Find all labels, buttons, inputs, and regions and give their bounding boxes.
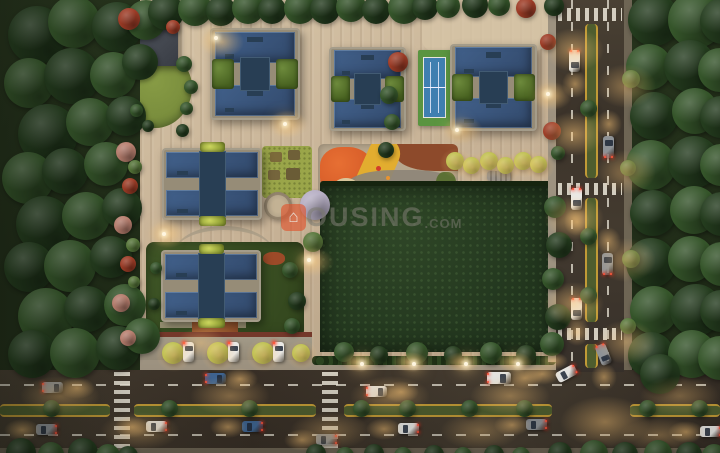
tree bbox=[241, 400, 258, 417]
tree bbox=[116, 142, 136, 162]
site-plan-rendering: ⌂ OUSING .COM bbox=[0, 0, 720, 453]
tree bbox=[480, 152, 498, 170]
tree bbox=[488, 0, 510, 16]
tree bbox=[644, 440, 672, 453]
tail-light bbox=[572, 298, 574, 300]
tail-light bbox=[570, 50, 572, 52]
tree bbox=[166, 20, 180, 34]
car bbox=[398, 423, 419, 434]
watermark: ⌂ OUSING .COM bbox=[281, 204, 462, 231]
tree bbox=[334, 342, 354, 362]
tree bbox=[142, 120, 154, 132]
tree bbox=[620, 318, 636, 334]
tail-light bbox=[205, 374, 207, 376]
car-windshield bbox=[600, 354, 609, 362]
tree bbox=[42, 148, 88, 194]
tail-light bbox=[579, 188, 581, 190]
car-windshield bbox=[604, 257, 612, 263]
tail-light bbox=[577, 50, 579, 52]
tree bbox=[306, 444, 326, 453]
tail-light bbox=[545, 427, 547, 429]
tree bbox=[620, 160, 636, 176]
car bbox=[205, 373, 226, 384]
tail-light bbox=[487, 373, 489, 375]
tree bbox=[542, 268, 564, 290]
tree bbox=[612, 442, 638, 453]
tail-light bbox=[42, 383, 44, 385]
tree bbox=[64, 286, 110, 332]
car-windshield bbox=[321, 436, 326, 444]
tree bbox=[122, 44, 158, 80]
tree bbox=[530, 156, 547, 173]
tree bbox=[484, 445, 504, 453]
street-light bbox=[283, 122, 287, 126]
tail-light bbox=[55, 432, 57, 434]
tree bbox=[38, 442, 64, 453]
tail-light bbox=[610, 273, 612, 275]
tree bbox=[497, 157, 514, 174]
tree bbox=[50, 328, 100, 378]
tree bbox=[130, 104, 143, 117]
tree bbox=[292, 344, 310, 362]
street-light bbox=[546, 92, 550, 96]
car-windshield bbox=[403, 425, 408, 433]
car-windshield bbox=[41, 426, 46, 434]
car-windshield bbox=[151, 423, 156, 431]
tree bbox=[446, 152, 464, 170]
tail-light bbox=[603, 273, 605, 275]
car bbox=[700, 426, 720, 437]
car-windshield bbox=[573, 200, 581, 206]
tree bbox=[370, 346, 388, 364]
car bbox=[228, 342, 239, 362]
tree bbox=[106, 96, 146, 136]
car-windshield bbox=[500, 374, 506, 383]
tree bbox=[128, 160, 142, 174]
car bbox=[36, 424, 57, 435]
tree bbox=[461, 400, 478, 417]
tree bbox=[336, 447, 354, 453]
tree bbox=[384, 114, 400, 130]
tail-light bbox=[545, 420, 547, 422]
tail-light bbox=[572, 365, 575, 368]
tree bbox=[288, 292, 306, 310]
tail-light bbox=[335, 442, 337, 444]
tree bbox=[424, 445, 444, 453]
tail-light bbox=[487, 381, 489, 383]
tail-light bbox=[611, 156, 613, 158]
tail-light bbox=[366, 394, 368, 396]
tail-light bbox=[366, 387, 368, 389]
tree bbox=[122, 178, 138, 194]
car-windshield bbox=[571, 62, 579, 68]
tree bbox=[516, 400, 533, 417]
tree bbox=[128, 276, 140, 288]
tail-light bbox=[417, 431, 419, 433]
tree bbox=[6, 438, 36, 453]
tree bbox=[44, 240, 96, 292]
tree bbox=[691, 400, 708, 417]
tree bbox=[540, 332, 564, 356]
tree bbox=[640, 354, 680, 394]
tree bbox=[353, 400, 370, 417]
tree bbox=[540, 34, 556, 50]
tree bbox=[112, 294, 130, 312]
street-light bbox=[307, 258, 311, 262]
tree bbox=[362, 0, 390, 24]
tree bbox=[180, 102, 193, 115]
tree bbox=[545, 304, 571, 330]
tree bbox=[630, 190, 676, 236]
tree bbox=[543, 122, 561, 140]
tree bbox=[580, 100, 597, 117]
watermark-text: OUSING bbox=[306, 204, 425, 231]
tree bbox=[118, 446, 138, 453]
car bbox=[316, 434, 337, 445]
street-light bbox=[464, 362, 468, 366]
tree bbox=[258, 0, 286, 24]
tree bbox=[184, 80, 198, 94]
car-windshield bbox=[531, 421, 536, 429]
car-windshield bbox=[705, 428, 710, 436]
tree bbox=[548, 442, 572, 453]
tree bbox=[176, 56, 192, 72]
tree bbox=[454, 447, 472, 453]
car-windshield bbox=[573, 310, 581, 316]
tail-light bbox=[417, 424, 419, 426]
car bbox=[603, 136, 614, 158]
street-light bbox=[455, 128, 459, 132]
street-light bbox=[214, 36, 218, 40]
car-windshield bbox=[185, 346, 193, 351]
tree bbox=[512, 447, 530, 453]
car-windshield bbox=[378, 388, 383, 396]
housing-logo-icon: ⌂ bbox=[281, 204, 306, 231]
tail-light bbox=[575, 371, 578, 374]
tail-light bbox=[595, 346, 598, 349]
tree bbox=[303, 232, 323, 252]
tree bbox=[68, 438, 98, 453]
tree bbox=[150, 262, 162, 274]
tree bbox=[161, 400, 178, 417]
car-windshield bbox=[559, 370, 567, 379]
car bbox=[366, 386, 387, 397]
tree bbox=[444, 346, 462, 364]
car-windshield bbox=[54, 384, 59, 392]
tree bbox=[406, 342, 428, 364]
tree bbox=[284, 318, 300, 334]
street-light bbox=[412, 362, 416, 366]
car bbox=[183, 342, 194, 362]
tail-light bbox=[261, 429, 263, 431]
tree bbox=[480, 342, 502, 364]
street-light bbox=[162, 232, 166, 236]
tail-light bbox=[335, 435, 337, 437]
tree bbox=[702, 444, 720, 453]
tree bbox=[544, 0, 564, 16]
street-light bbox=[516, 362, 520, 366]
car-windshield bbox=[247, 423, 252, 431]
tree bbox=[114, 216, 132, 234]
tail-light bbox=[183, 342, 185, 344]
tree bbox=[126, 238, 140, 252]
tail-light bbox=[205, 381, 207, 383]
car bbox=[242, 421, 263, 432]
tree bbox=[388, 52, 408, 72]
tail-light bbox=[602, 343, 605, 346]
street-light bbox=[360, 362, 364, 366]
car bbox=[571, 188, 582, 210]
tree bbox=[120, 330, 136, 346]
car bbox=[526, 419, 547, 430]
tree bbox=[120, 256, 136, 272]
tree bbox=[546, 232, 572, 258]
car-windshield bbox=[217, 375, 222, 383]
tail-light bbox=[228, 342, 230, 344]
tree bbox=[378, 142, 394, 158]
car bbox=[602, 253, 613, 275]
tree bbox=[514, 152, 532, 170]
tree bbox=[399, 400, 416, 417]
car bbox=[273, 342, 284, 362]
tree bbox=[394, 447, 412, 453]
tree bbox=[8, 330, 56, 378]
tree bbox=[43, 400, 60, 417]
tree bbox=[162, 342, 184, 364]
tree bbox=[176, 124, 189, 137]
tree bbox=[544, 196, 566, 218]
tree bbox=[462, 0, 488, 18]
tree bbox=[580, 228, 597, 245]
tree bbox=[516, 0, 536, 18]
tree bbox=[580, 440, 608, 453]
tree bbox=[96, 444, 120, 453]
tail-light bbox=[165, 429, 167, 431]
tail-light bbox=[42, 390, 44, 392]
tree bbox=[630, 92, 678, 140]
tree bbox=[436, 0, 460, 18]
tree bbox=[207, 342, 229, 364]
tree bbox=[412, 0, 438, 20]
tree bbox=[622, 70, 640, 88]
tail-light bbox=[55, 425, 57, 427]
tail-light bbox=[273, 342, 275, 344]
car bbox=[487, 372, 511, 384]
tail-light bbox=[572, 188, 574, 190]
tree bbox=[364, 444, 384, 453]
tree bbox=[622, 250, 640, 268]
tree bbox=[148, 298, 160, 310]
watermark-suffix: .COM bbox=[425, 216, 463, 231]
car bbox=[569, 50, 580, 72]
tree bbox=[282, 262, 298, 278]
tail-light bbox=[165, 422, 167, 424]
tree bbox=[380, 86, 398, 104]
tree bbox=[463, 157, 480, 174]
car-windshield bbox=[275, 346, 283, 351]
car bbox=[146, 421, 167, 432]
tree bbox=[252, 342, 274, 364]
car-windshield bbox=[230, 346, 238, 351]
tree bbox=[580, 287, 597, 304]
tree bbox=[551, 146, 565, 160]
car bbox=[42, 382, 63, 393]
car-windshield bbox=[605, 140, 613, 146]
car bbox=[571, 298, 582, 320]
tail-light bbox=[604, 156, 606, 158]
tree bbox=[118, 8, 140, 30]
tree bbox=[639, 400, 656, 417]
tree bbox=[676, 442, 702, 453]
tail-light bbox=[261, 422, 263, 424]
